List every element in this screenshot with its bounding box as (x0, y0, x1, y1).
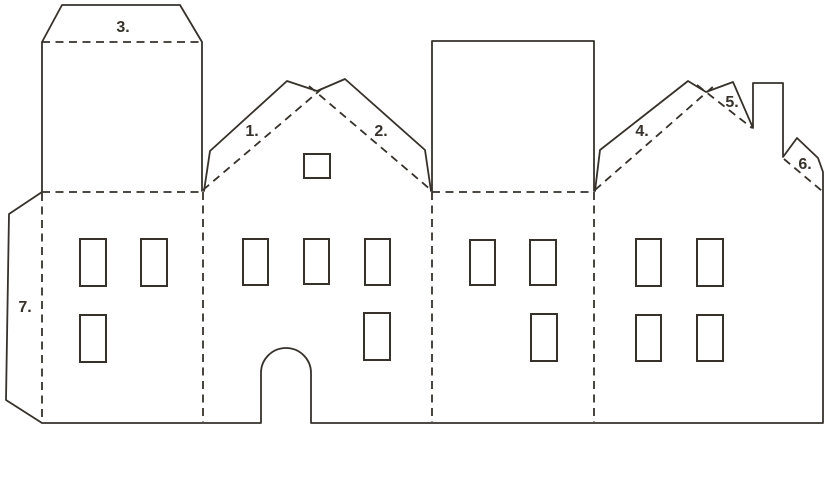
fold-label-4: 4. (635, 123, 648, 140)
fold-label-1: 1. (245, 123, 258, 140)
window-h2-r1-c1 (243, 239, 268, 285)
base-tab-and-door-outline (6, 192, 823, 423)
window-h1-r2-c1 (80, 315, 106, 362)
fold-label-5: 5. (725, 94, 738, 111)
fold-label-2: 2. (374, 123, 387, 140)
window-h4-r2-c1 (636, 315, 661, 361)
roof-chimney-outline-house4 (595, 81, 823, 422)
window-h2-r2-c3 (364, 313, 390, 360)
fold-label-7: 7. (18, 299, 31, 316)
window-h4-r1-c2 (697, 239, 723, 286)
windows (80, 154, 723, 362)
window-h1-r1-c1 (80, 239, 106, 286)
paper-house-template-page: 1. 2. 3. 4. 5. 6. 7. (0, 0, 830, 489)
window-h3-r1-c2 (530, 240, 556, 285)
fold-label-6: 6. (798, 156, 811, 173)
window-h4-r2-c2 (697, 315, 723, 361)
roof-flap-outline-house2 (204, 79, 431, 191)
parapet-outline-house3 (432, 41, 594, 191)
paper-house-template-canvas: 1. 2. 3. 4. 5. 6. 7. (0, 0, 830, 489)
window-h4-r1-c1 (636, 239, 661, 286)
window-h3-r2-c2 (531, 314, 557, 361)
window-h2-r1-c3 (365, 239, 390, 285)
window-h2-r1-c2 (304, 239, 329, 284)
fold-label-3: 3. (116, 19, 129, 36)
fold-line-4 (595, 85, 715, 190)
fold-labels: 1. 2. 3. 4. 5. 6. 7. (18, 19, 811, 316)
window-h3-r1-c1 (470, 240, 495, 285)
window-h2-gable (304, 154, 330, 178)
window-h1-r1-c2 (141, 239, 167, 286)
